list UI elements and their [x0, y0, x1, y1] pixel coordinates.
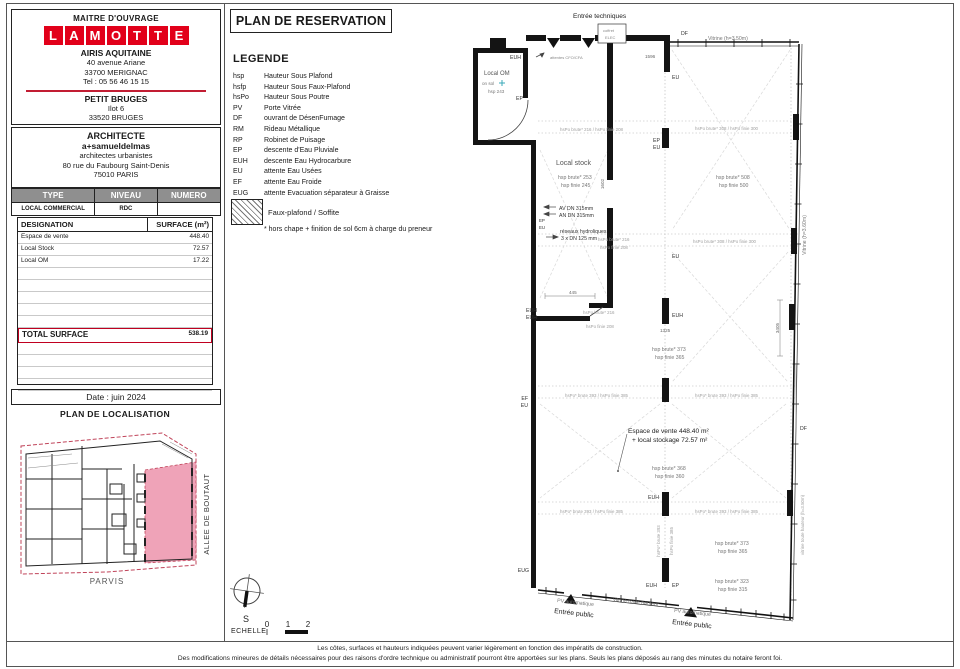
table-row: Espace de vente 448.40 — [18, 232, 212, 244]
logo-letter: E — [170, 26, 189, 45]
stock-hsp-finie: hsp finie 245 — [561, 183, 591, 189]
dim-1325: 1325 — [660, 328, 671, 333]
eu-mid-label: EU — [653, 145, 660, 151]
legend-desc: attente Eau Froide — [264, 178, 322, 189]
espace-area-line1: Espace de vente 448.40 m² — [628, 428, 709, 435]
vitrine-top-label: Vitrine (h=3.50m) — [708, 36, 748, 42]
eu-left-label: EU — [521, 403, 528, 409]
type-table-header: TYPE NIVEAU NUMERO — [12, 189, 220, 202]
date-bar: Date : juin 2024 — [11, 389, 221, 405]
stock-hsp-brute: hsp brute* 253 — [558, 175, 592, 181]
stock-band-brute: hsPo brute* 216 — [598, 237, 630, 242]
legend-abbr: DF — [233, 114, 264, 125]
attentes-cfo-cfa-label: attentes CFO/CFA — [550, 55, 583, 60]
maitre-ouvrage-label: MAITRE D'OUVRAGE — [12, 14, 220, 23]
lamotte-logo: L A M O T T E — [12, 26, 220, 45]
table-row-empty — [18, 280, 212, 292]
scale-segment — [285, 630, 308, 634]
eu-topright-label: EU — [672, 75, 679, 81]
coffret-label: coffret — [603, 28, 615, 33]
local-om-label: Local OM — [484, 71, 510, 77]
entrance-arrow-top1 — [547, 38, 560, 48]
logo-letter: O — [107, 26, 126, 45]
type-table: TYPE NIVEAU NUMERO LOCAL COMMERCIAL RDC — [11, 188, 221, 216]
local-stock-label: Local stock — [556, 160, 592, 167]
logo-letter: T — [149, 26, 168, 45]
legend-desc: attente Evacuation séparateur à Graisse — [264, 189, 389, 200]
scale-2: 2 — [306, 620, 311, 629]
parvis-label: PARVIS — [90, 577, 125, 586]
legend-desc: Porte Vitrée — [264, 104, 301, 115]
table-row-empty — [18, 268, 212, 280]
south-label: S — [243, 614, 249, 624]
footer-notes: Les côtes, surfaces et hauteurs indiquée… — [0, 644, 960, 663]
total-label: TOTAL SURFACE — [19, 329, 147, 342]
entree-public-2: Entrée public — [672, 619, 713, 630]
scale-1: 1 — [286, 620, 291, 629]
table-row: Local OM 17.22 — [18, 256, 212, 268]
logo-letter: L — [44, 26, 63, 45]
table-row-empty — [18, 343, 212, 355]
tr-hsp-finie: hsp finie 500 — [719, 183, 749, 189]
legend-abbr: RM — [233, 125, 264, 136]
band-393-right: hsPo* brute 393 / hsPo finie 385 — [695, 393, 759, 398]
hatch-label: Faux-plafond / Soffite — [268, 208, 339, 217]
reseaux-label: réseaux hydroliques — [560, 229, 607, 235]
df-right-label: DF — [800, 426, 807, 432]
architect-name: a+samueldelmas — [12, 141, 220, 151]
architect-address1: 80 rue du Faubourg Saint-Denis — [12, 161, 220, 171]
an-dn-label: AN DN 315mm — [559, 213, 594, 219]
legend-abbr: EF — [233, 178, 264, 189]
legend-desc: descente Eau Hydrocarbure — [264, 157, 351, 168]
company-address2: 33700 MERIGNAC — [12, 68, 220, 78]
legend-desc: Hauteur Sous Plafond — [264, 72, 333, 83]
type-table-row: LOCAL COMMERCIAL RDC — [12, 202, 220, 215]
on-sol-label: on sol — [482, 81, 494, 86]
legend-item: hsPoHauteur Sous Poutre — [233, 93, 453, 104]
hatch-swatch — [231, 199, 263, 225]
av-dn-label: AV DN 315mm — [559, 206, 593, 212]
legend-item: EUGattente Evacuation séparateur à Grais… — [233, 189, 453, 200]
hsp-323-label: hsp brute* 323 — [715, 579, 749, 585]
row-label: Espace de vente — [18, 232, 148, 243]
legend-desc: Rideau Métallique — [264, 125, 320, 136]
legend-item: EUattente Eau Usées — [233, 167, 453, 178]
elec-label: ELEC — [605, 35, 616, 40]
legend-note: * hors chape + finition de sol 6cm à cha… — [264, 226, 432, 233]
legend-desc: descente d'Eau Pluviale — [264, 146, 339, 157]
hsp-360-label: hsp finie 360 — [655, 474, 685, 480]
vitrine-right-label: Vitrine (h=3.60m) — [802, 215, 808, 255]
street-label: ALLEE DE BOUTAUT — [202, 473, 211, 554]
niveau-header: NIVEAU — [95, 189, 157, 202]
table-row-empty — [18, 304, 212, 316]
euh-mid-label: EUH — [648, 495, 659, 501]
dim-1596: 1596 — [645, 54, 656, 59]
company-address1: 40 avenue Ariane — [12, 58, 220, 68]
legend-desc: Robinet de Puisage — [264, 136, 325, 147]
footer-line2: Des modifications mineures de détails né… — [0, 654, 960, 664]
eug-label: EUG — [518, 568, 529, 574]
legend-abbr: EUH — [233, 157, 264, 168]
stock-band2-brute: hsPo brute* 216 — [583, 310, 615, 315]
surface-table: DESIGNATION SURFACE (m²) Espace de vente… — [17, 217, 213, 385]
total-value: 538.19 — [147, 329, 211, 342]
legend-title: LEGENDE — [233, 53, 289, 65]
compass-rose — [228, 574, 266, 610]
ep-pipe-label: EP — [539, 218, 545, 223]
dn125-label: 3 x DN 125 mm — [561, 236, 597, 242]
localisation-map: ALLEE DE BOUTAUT PARVIS — [12, 424, 218, 586]
red-divider — [26, 90, 206, 92]
entrance-arrow-top2 — [582, 38, 595, 48]
type-header: TYPE — [12, 189, 95, 202]
architect-address2: 75010 PARIS — [12, 170, 220, 180]
legend-item: EFattente Eau Froide — [233, 178, 453, 189]
dim-445: 445 — [569, 290, 577, 295]
logo-letter: T — [128, 26, 147, 45]
stock-band2-finie: hsPo finie 208 — [586, 324, 614, 329]
legend-item: RMRideau Métallique — [233, 125, 453, 136]
vitrine-bottomright-label: vitrine toute hauteur (h=3.50m) — [800, 494, 805, 555]
legend-item: hsfpHauteur Sous Faux-Plafond — [233, 83, 453, 94]
project-city: 33520 BRUGES — [12, 113, 220, 123]
band-393-left2: hsPo* brute 393 / hsPo finie 385 — [560, 509, 624, 514]
band-308-mid: hsPo brute* 308 / hsPo finie 300 — [693, 239, 757, 244]
pv-automatique-1: PV automatique — [557, 598, 594, 608]
entrance-arrows — [547, 38, 697, 618]
door-arc — [488, 100, 528, 140]
hsp-365-low: hsp finie 365 — [718, 549, 748, 555]
eu-pipe-label: EU — [539, 225, 545, 230]
company-tel: Tel : 05 56 46 15 15 — [12, 77, 220, 87]
surface-header: SURFACE (m²) — [147, 218, 212, 231]
legend-abbr: PV — [233, 104, 264, 115]
band-393-left: hsPo* brute 393 / hsPo finie 385 — [565, 393, 629, 398]
row-label: Local OM — [18, 256, 148, 267]
ef-label: EF — [521, 396, 528, 402]
designation-header: DESIGNATION — [18, 218, 147, 231]
pipe-arrows — [536, 53, 558, 239]
localisation-title: PLAN DE LOCALISATION — [11, 409, 219, 419]
hsp-373-center: hsp brute* 373 — [652, 347, 686, 353]
euh-bottom-label: EUH — [646, 583, 657, 589]
floor-plan: Entrée techniques coffret ELEC DF Vitrin… — [460, 0, 812, 648]
walls — [473, 35, 799, 588]
legend-desc: Hauteur Sous Faux-Plafond — [264, 83, 350, 94]
dim-1602: 1602 — [600, 178, 605, 189]
logo-letter: M — [86, 26, 105, 45]
hsp-243-label: hsp 243 — [488, 89, 505, 94]
df-top-label: DF — [681, 31, 688, 37]
scale-0: 0 — [265, 620, 270, 629]
euh-label: EUH — [510, 55, 521, 61]
legend-desc: Hauteur Sous Poutre — [264, 93, 329, 104]
logo-letter: A — [65, 26, 84, 45]
legend-item: RPRobinet de Puisage — [233, 136, 453, 147]
coffret-elec-box — [598, 24, 626, 43]
architect-title: ARCHITECTE — [12, 131, 220, 141]
vitrine-bottom-label: vitrine toute hauteur — [613, 597, 660, 608]
surface-table-header: DESIGNATION SURFACE (m²) — [18, 218, 212, 232]
euh-left2-label: EUH — [526, 315, 537, 321]
legend-desc: ouvrant de DésenFumage — [264, 114, 345, 125]
legend-item: EUHdescente Eau Hydrocarbure — [233, 157, 453, 168]
table-row-empty — [18, 367, 212, 379]
company-name: AIRIS AQUITAINE — [12, 48, 220, 58]
legend-list: hspHauteur Sous Plafond hsfpHauteur Sous… — [233, 72, 453, 199]
numero-value — [158, 202, 220, 215]
total-row: TOTAL SURFACE 538.19 — [18, 328, 212, 343]
band-216-top: hsPo brute* 216 / hsPo finie 208 — [560, 127, 624, 132]
floor-drain-icon — [499, 80, 505, 86]
hsp-368-label: hsp brute* 368 — [652, 466, 686, 472]
legend-item: hspHauteur Sous Plafond — [233, 72, 453, 83]
page-title: PLAN DE RESERVATION — [230, 9, 392, 33]
footer-line1: Les côtes, surfaces et hauteurs indiquée… — [0, 644, 960, 654]
tr-hsp-brute: hsp brute* 508 — [716, 175, 750, 181]
post-band-brute: hsPo* brute 393 — [656, 525, 661, 557]
legend-abbr: EUG — [233, 189, 264, 200]
row-value: 448.40 — [148, 232, 212, 243]
legend-item: DFouvrant de DésenFumage — [233, 114, 453, 125]
legend-abbr: RP — [233, 136, 264, 147]
table-row: Local Stock 72.57 — [18, 244, 212, 256]
euh-post-label: EUH — [672, 313, 683, 319]
row-value: 17.22 — [148, 256, 212, 267]
euh-left1-label: EUH — [526, 308, 537, 314]
legend-item: EPdescente d'Eau Pluviale — [233, 146, 453, 157]
stock-band-finie: hsPo finie 208 — [600, 245, 628, 250]
highlighted-lot — [145, 462, 196, 563]
row-label: Local Stock — [18, 244, 148, 255]
niveau-value: RDC — [95, 202, 157, 215]
architect-subtitle: architectes urbanistes — [12, 151, 220, 161]
type-value: LOCAL COMMERCIAL — [12, 202, 95, 215]
entree-public-1: Entrée public — [554, 608, 595, 619]
ep-mid-label: EP — [653, 138, 660, 144]
legend-abbr: hsPo — [233, 93, 264, 104]
legend-abbr: hsfp — [233, 83, 264, 94]
table-row-empty — [18, 355, 212, 367]
area-leader — [617, 434, 627, 472]
maitre-ouvrage-block: MAITRE D'OUVRAGE L A M O T T E AIRIS AQU… — [11, 9, 221, 125]
band-393-right2: hsPo* brute 393 / hsPo finie 385 — [695, 509, 759, 514]
numero-header: NUMERO — [158, 189, 220, 202]
project-ilot: Ilot 6 — [12, 104, 220, 114]
band-308-top: hsPo brute* 308 / hsPo finie 300 — [695, 126, 759, 131]
legend-abbr: EP — [233, 146, 264, 157]
espace-area-line2: + local stockage 72.57 m² — [632, 437, 708, 444]
ep-om-label: EP — [516, 96, 523, 102]
legend-item: PVPorte Vitrée — [233, 104, 453, 115]
project-name: PETIT BRUGES — [12, 94, 220, 104]
scale-bar: 0 1 2 — [258, 616, 328, 642]
ep-bottom-label: EP — [672, 583, 679, 589]
legend-desc: attente Eau Usées — [264, 167, 322, 178]
legend-abbr: hsp — [233, 72, 264, 83]
hsp-315-label: hsp finie 315 — [718, 587, 748, 593]
architect-block: ARCHITECTE a+samueldelmas architectes ur… — [11, 127, 221, 188]
row-value: 72.57 — [148, 244, 212, 255]
eu-band-label: EU — [672, 254, 679, 260]
entree-techniques-label: Entrée techniques — [573, 13, 627, 20]
legend-abbr: EU — [233, 167, 264, 178]
hsp-373-low: hsp brute* 373 — [715, 541, 749, 547]
column-divider — [224, 3, 225, 641]
table-row-empty — [18, 316, 212, 328]
dim-3405: 3405 — [775, 322, 780, 333]
table-row-empty — [18, 292, 212, 304]
post-band-finie: hsPo finie 385 — [669, 527, 674, 555]
hsp-365-center: hsp finie 365 — [655, 355, 685, 361]
